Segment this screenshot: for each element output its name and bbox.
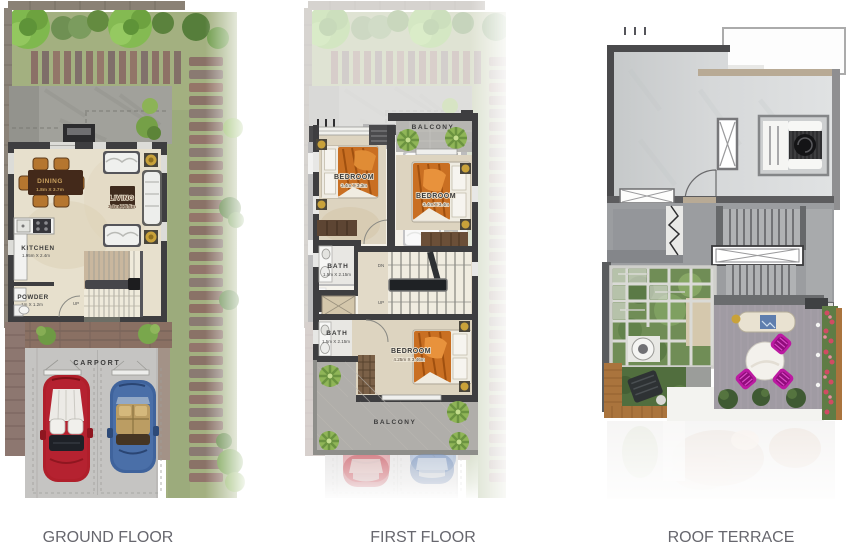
svg-text:BATH: BATH [327, 263, 349, 270]
svg-text:BALCONY: BALCONY [412, 124, 455, 131]
svg-text:BATH: BATH [326, 330, 348, 337]
svg-text:FIRST FLOOR: FIRST FLOOR [370, 529, 476, 546]
svg-text:1.5m X 2.15m: 1.5m X 2.15m [322, 339, 350, 344]
svg-text:UP: UP [378, 300, 384, 305]
svg-text:BEDROOM: BEDROOM [391, 348, 431, 355]
svg-text:3.4m X 3.4m: 3.4m X 3.4m [423, 202, 449, 207]
svg-text:3.4m X 3.3m: 3.4m X 3.3m [341, 183, 367, 188]
svg-text:DN: DN [378, 263, 385, 268]
svg-text:BALCONY: BALCONY [374, 419, 417, 426]
svg-text:1.5m X 2.15m: 1.5m X 2.15m [323, 272, 351, 277]
svg-text:4.25m X 3.46m: 4.25m X 3.46m [393, 357, 424, 362]
svg-text:ROOF TERRACE: ROOF TERRACE [668, 529, 795, 546]
svg-text:GROUND FLOOR: GROUND FLOOR [43, 529, 174, 546]
svg-text:BEDROOM: BEDROOM [334, 174, 374, 181]
svg-text:BEDROOM: BEDROOM [416, 193, 456, 200]
